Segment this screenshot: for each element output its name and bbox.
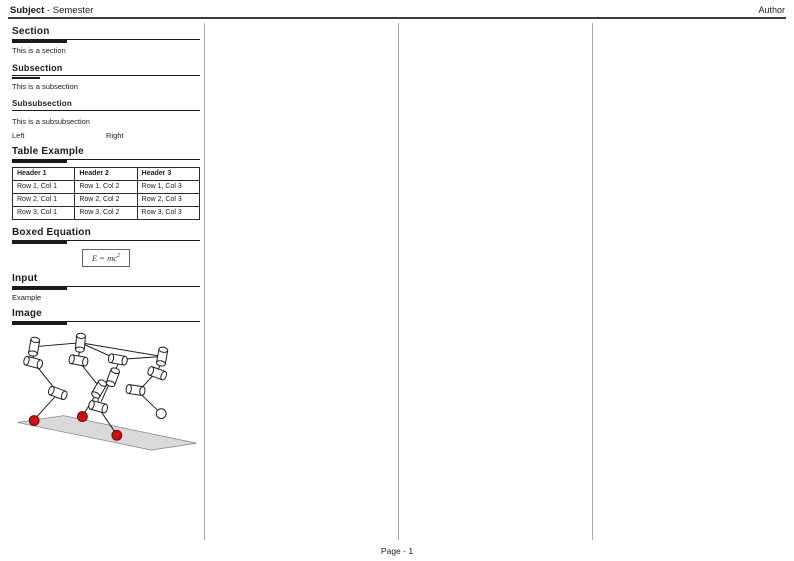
joint-cylinder <box>23 355 44 368</box>
table-cell: Row 2, Col 1 <box>13 193 75 206</box>
joint-cylinder <box>75 332 85 352</box>
column-separator-1 <box>204 23 205 540</box>
table-header-cell: Header 1 <box>13 167 75 180</box>
table-header-row: Header 1 Header 2 Header 3 <box>13 167 200 180</box>
foot-contact-point <box>112 430 122 440</box>
equation-exponent: 2 <box>117 253 120 259</box>
joint-cylinder <box>106 366 121 387</box>
joint-cylinder <box>47 385 68 400</box>
document-title: Subject - Semester <box>10 5 93 16</box>
minipage-left-text: Left <box>12 131 106 140</box>
column-1: Section This is a section Subsection Thi… <box>12 24 200 460</box>
foot-contact-point <box>29 415 39 425</box>
subsubsection-body: This is a subsubsection <box>12 117 200 126</box>
subsection-heading: Subsection <box>12 63 200 76</box>
header-rule <box>8 17 786 19</box>
column-separator-3 <box>592 23 593 540</box>
image-heading: Image <box>12 308 200 322</box>
minipage-right-text: Right <box>106 131 200 140</box>
joint-cylinder <box>91 378 108 399</box>
example-table: Header 1 Header 2 Header 3 Row 1, Col 1 … <box>12 167 200 220</box>
boxed-equation: E = mc2 <box>82 249 130 267</box>
body-frame <box>34 342 162 359</box>
two-column-minipage: Left Right <box>12 131 200 140</box>
joint-cylinder <box>68 354 88 366</box>
equation-base: E = mc <box>92 253 117 263</box>
table-cell: Row 3, Col 2 <box>75 206 137 219</box>
joint-cylinder <box>108 353 128 365</box>
table-example-heading: Table Example <box>12 146 200 160</box>
document-page: Subject - Semester Author Section This i… <box>0 0 794 561</box>
table-cell: Row 1, Col 2 <box>75 180 137 193</box>
table-header-cell: Header 3 <box>137 167 199 180</box>
column-separator-2 <box>398 23 399 540</box>
table-cell: Row 2, Col 3 <box>137 193 199 206</box>
table-cell: Row 1, Col 1 <box>13 180 75 193</box>
section-heading: Section <box>12 26 200 40</box>
foot-swing-point <box>156 408 166 418</box>
subsection-body: This is a subsection <box>12 82 200 91</box>
joint-cylinder <box>88 400 109 413</box>
joint-cylinder <box>28 336 40 356</box>
joint-cylinder <box>156 346 168 366</box>
boxed-equation-heading: Boxed Equation <box>12 227 200 241</box>
table-row: Row 2, Col 1 Row 2, Col 2 Row 2, Col 3 <box>13 193 200 206</box>
title-separator: - <box>44 5 52 16</box>
joint-cylinder <box>126 384 146 395</box>
table-row: Row 3, Col 1 Row 3, Col 2 Row 3, Col 3 <box>13 206 200 219</box>
foot-contact-point <box>77 411 87 421</box>
robot-figure <box>12 327 202 455</box>
subject-label: Subject <box>10 5 44 16</box>
section-body: This is a section <box>12 46 200 55</box>
table-cell: Row 1, Col 3 <box>137 180 199 193</box>
input-heading: Input <box>12 273 200 287</box>
page-number: Page - 1 <box>0 546 794 556</box>
figure-container <box>12 327 200 460</box>
input-body: Example <box>12 293 200 302</box>
author-label: Author <box>758 5 785 15</box>
table-cell: Row 3, Col 1 <box>13 206 75 219</box>
semester-label: Semester <box>53 5 94 16</box>
equation-container: E = mc2 <box>12 248 200 267</box>
table-cell: Row 3, Col 3 <box>137 206 199 219</box>
table-row: Row 1, Col 1 Row 1, Col 2 Row 1, Col 3 <box>13 180 200 193</box>
table-cell: Row 2, Col 2 <box>75 193 137 206</box>
subsubsection-heading: Subsubsection <box>12 99 200 111</box>
table-header-cell: Header 2 <box>75 167 137 180</box>
